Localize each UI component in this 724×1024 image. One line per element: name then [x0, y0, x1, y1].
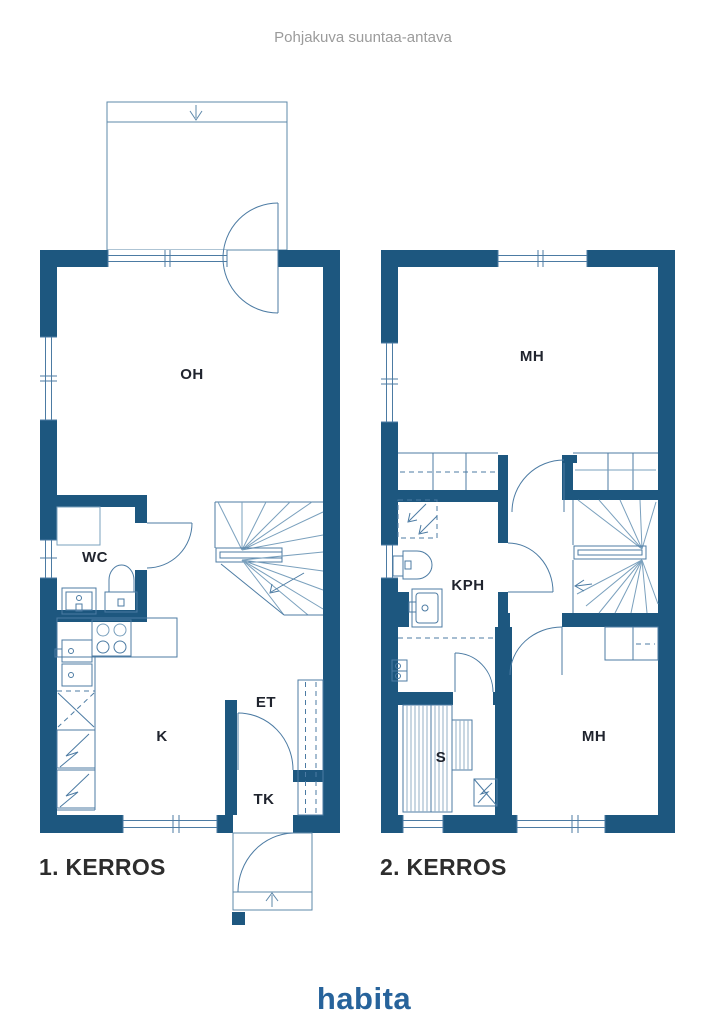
stairs-floor1	[215, 502, 323, 615]
room-label-mh-top: MH	[520, 348, 544, 365]
floor1-label: 1. KERROS	[39, 854, 166, 880]
floor2-plan: MH KPH S MH	[381, 250, 675, 833]
entrance-porch	[233, 833, 312, 910]
sauna-bench-small	[452, 720, 472, 770]
kitchen-counter	[57, 618, 177, 657]
kph-door	[508, 543, 553, 592]
window-left-upper	[40, 337, 57, 420]
window-left-wc	[40, 540, 57, 578]
wc-shelf	[57, 507, 100, 545]
room-label-tk: TK	[254, 791, 275, 808]
floor1-windows	[40, 250, 227, 833]
fridge-icon	[57, 730, 95, 768]
toilet-icon	[105, 565, 137, 612]
hall-doors	[508, 460, 564, 675]
room-label-oh: OH	[180, 366, 204, 383]
mh-bottom-door	[510, 627, 562, 675]
floorplan-drawing: OH WC K ET TK	[0, 0, 724, 1024]
window-left-mh	[381, 343, 398, 422]
window-bottom-mh	[517, 815, 605, 833]
sauna-stove-icon	[474, 779, 497, 806]
stairs-down-arrow-icon-f2	[575, 580, 592, 591]
entry-area	[233, 680, 323, 910]
terrace-outline	[107, 102, 287, 250]
terrace-door	[223, 203, 278, 313]
habita-logo: habita	[317, 981, 412, 1016]
page-title: Pohjakuva suuntaa-antava	[274, 29, 452, 46]
porch-pillar	[232, 912, 245, 925]
floor2-label: 2. KERROS	[380, 854, 507, 880]
sink-icon	[62, 588, 96, 614]
room-label-k: K	[156, 728, 167, 745]
room-label-kph: KPH	[451, 577, 484, 594]
kitchen	[55, 618, 177, 810]
duct-block	[381, 592, 409, 627]
window-bottom-sauna	[403, 815, 443, 833]
freezer-icon	[57, 770, 95, 808]
wc-door	[147, 523, 192, 568]
floorplan-page: OH WC K ET TK	[0, 0, 724, 1024]
shower-reservation-icon	[398, 500, 437, 538]
window-left-kph	[381, 545, 398, 578]
kitchen-sink-icon	[55, 640, 92, 686]
room-label-s: S	[436, 749, 447, 766]
sink-icon-f2	[409, 589, 442, 627]
floor2-walls	[381, 250, 675, 833]
sauna-room	[403, 705, 497, 812]
toilet-icon-f2	[393, 551, 432, 579]
window-top-f2	[498, 250, 587, 267]
room-label-et: ET	[256, 694, 276, 711]
mh-top-door	[512, 460, 564, 512]
stairs-floor2	[573, 500, 658, 613]
stove-icon	[92, 620, 131, 656]
window-top	[108, 250, 227, 267]
window-bottom	[123, 815, 217, 833]
wc-room	[57, 507, 192, 614]
room-label-mh-bottom: MH	[582, 728, 606, 745]
et-closet	[298, 680, 323, 815]
et-door	[238, 713, 293, 770]
room-label-wc: WC	[82, 549, 108, 566]
floor1-plan: OH WC K ET TK	[40, 102, 340, 925]
mh-bottom-closet	[605, 627, 658, 660]
stairs-down-arrow-icon	[270, 573, 304, 593]
sauna-door	[455, 653, 493, 692]
wardrobes-floor2	[398, 453, 658, 660]
dishwasher-reservation	[57, 691, 95, 727]
